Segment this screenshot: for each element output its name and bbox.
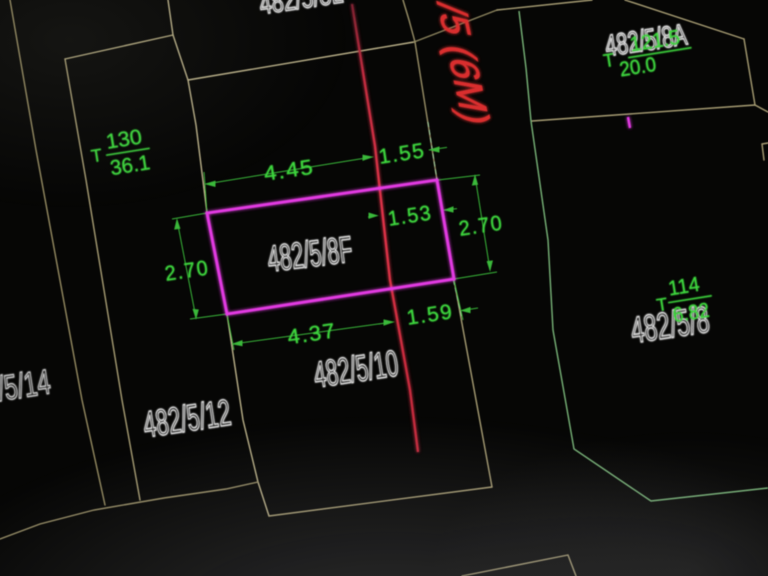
svg-text:/5/14: /5/14 [0,363,53,409]
svg-text:114: 114 [667,273,702,300]
